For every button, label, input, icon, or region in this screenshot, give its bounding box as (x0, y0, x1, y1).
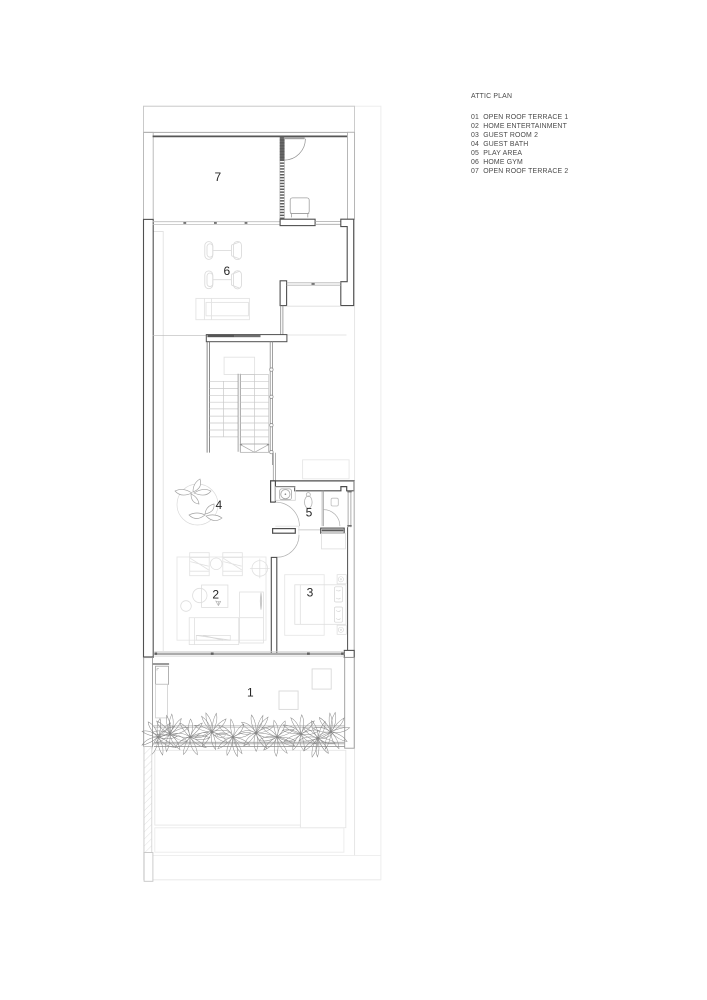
svg-text:3: 3 (307, 586, 314, 600)
svg-text:5: 5 (306, 505, 313, 519)
svg-text:7: 7 (214, 170, 221, 184)
svg-text:1: 1 (247, 685, 254, 699)
svg-text:2: 2 (212, 587, 219, 601)
svg-text:6: 6 (224, 264, 231, 278)
svg-text:4: 4 (215, 498, 222, 512)
